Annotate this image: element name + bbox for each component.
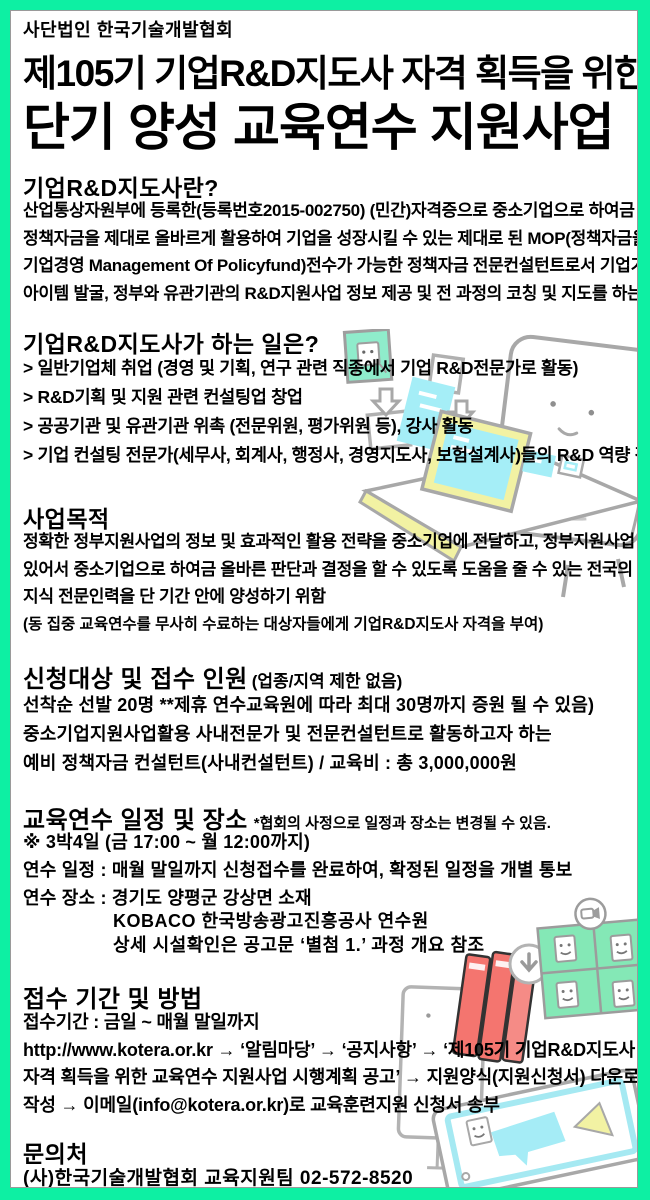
body-line: 산업통상자원부에 등록한(등록번호2015-002750) (민간)자격증으로 … [23,197,638,225]
body-line: 지식 전문인력을 단 기간 안에 양성하기 위함 [23,583,638,611]
purpose-note: (동 집중 교육연수를 무사히 수료하는 대상자들에게 기업R&D지도사 자격을… [23,612,543,634]
contact-info: (사)한국기술개발협회 교육지원팀 02-572-8520 [23,1163,413,1188]
body-line: ※ 3박4일 (금 17:00 ~ 월 12:00까지) [23,828,572,856]
section-about-body: 산업통상자원부에 등록한(등록번호2015-002750) (민간)자격증으로 … [23,197,638,307]
section-apply-body: 접수기간 : 금일 ~ 매월 말일까지 http://www.kotera.or… [23,1009,638,1119]
body-line: 상세 시설확인은 공고문 ‘별첨 1.’ 과정 개요 참조 [113,934,485,958]
body-line: 중소기업지원사업활용 사내전문가 및 전문컨설턴트로 활동하고자 하는 [23,720,594,749]
poster-title-line2: 단기 양성 교육연수 지원사업 [23,86,614,160]
section-schedule-body: ※ 3박4일 (금 17:00 ~ 월 12:00까지) 연수 일정 : 매월 … [23,828,572,912]
body-line: 예비 정책자금 컨설턴트(사내컨설턴트) / 교육비 : 총 3,000,000… [23,749,594,778]
home-button-icon [462,1172,470,1180]
body-line: 정책자금을 제대로 올바르게 활용하여 기업을 성장시킬 수 있는 제대로 된 … [23,225,638,253]
section-target-body: 선착순 선발 20명 **제휴 연수교육원에 따라 최대 30명까지 증원 될 … [23,691,594,778]
heading-note: (업종/지역 제한 없음) [252,672,403,691]
body-line: 연수 장소 : 경기도 양평군 강상면 소재 [23,884,572,912]
body-line: 연수 일정 : 매월 말일까지 신청접수를 완료하여, 확정된 일정을 개별 통… [23,856,572,884]
body-line: KOBACO 한국방송광고진흥공사 연수원 [113,910,485,934]
body-line: 접수기간 : 금일 ~ 매월 말일까지 [23,1009,638,1037]
body-line: 정확한 정부지원사업의 정보 및 효과적인 활용 전략을 중소기업에 전달하고,… [23,528,638,556]
section-roles-list: > 일반기업체 취업 (경영 및 기획, 연구 관련 직종에서 기업 R&D전문… [23,354,638,470]
bullet-item: > R&D기획 및 지원 관련 컨설팅업 창업 [23,383,638,412]
bullet-item: > 공공기관 및 유관기관 위촉 (전문위원, 평가위원 등), 강사 활동 [23,412,638,441]
body-line: 있어서 중소기업으로 하여금 올바른 판단과 결정을 할 수 있도록 도움을 줄… [23,556,638,584]
bullet-item: > 기업 컨설팅 전문가(세무사, 회계사, 행정사, 경영지도사, 보험설계사… [23,441,638,470]
body-line: 기업경영 Management Of Policyfund)전수가 가능한 정책… [23,252,638,280]
heading-text: 신청대상 및 접수 인원 [23,666,248,693]
poster: 사단법인 한국기술개발협회 제105기 기업R&D지도사 자격 획득을 위한 단… [0,0,650,1200]
face-card-icon [466,1117,492,1146]
schedule-sub-lines: KOBACO 한국방송광고진흥공사 연수원 상세 시설확인은 공고문 ‘별첨 1… [113,910,485,957]
body-line: 선착순 선발 20명 **제휴 연수교육원에 따라 최대 30명까지 증원 될 … [23,691,594,720]
section-heading-target: 신청대상 및 접수 인원(업종/지역 제한 없음) [23,659,402,694]
bullet-item: > 일반기업체 취업 (경영 및 기획, 연구 관련 직종에서 기업 R&D전문… [23,354,638,383]
poster-inner: 사단법인 한국기술개발협회 제105기 기업R&D지도사 자격 획득을 위한 단… [10,10,638,1188]
body-line: 아이템 발굴, 정부와 유관기관의 R&D지원사업 정보 제공 및 전 과정의 … [23,280,638,308]
body-line: 작성 → 이메일(info@kotera.or.kr)로 교육훈련지원 신청서 … [23,1092,638,1120]
organization-label: 사단법인 한국기술개발협회 [23,16,233,42]
section-purpose-body: 정확한 정부지원사업의 정보 및 효과적인 활용 전략을 중소기업에 전달하고,… [23,528,638,611]
body-line: 자격 획득을 위한 교육연수 지원사업 시행계획 공고’ → 지원양식(지원신청… [23,1064,638,1092]
video-grid-icon [535,896,638,1018]
body-line: http://www.kotera.or.kr → ‘알림마당’ → ‘공지사항… [23,1037,638,1065]
